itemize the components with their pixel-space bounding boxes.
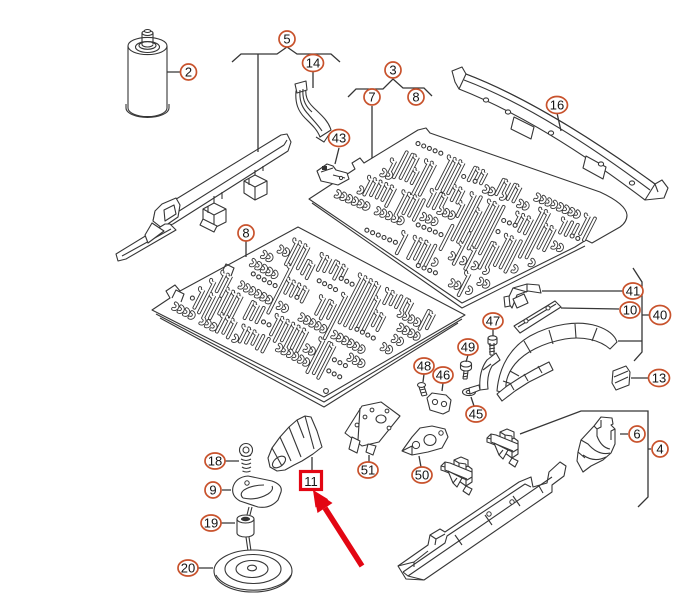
svg-text:20: 20 [181,561,195,576]
svg-text:2: 2 [185,65,192,80]
svg-text:7: 7 [368,90,375,105]
svg-text:11: 11 [304,474,318,489]
svg-text:41: 41 [626,284,640,299]
svg-text:14: 14 [306,56,320,71]
svg-text:45: 45 [469,407,483,422]
svg-text:48: 48 [417,359,431,374]
svg-text:3: 3 [389,63,396,78]
svg-text:40: 40 [653,308,667,323]
svg-text:19: 19 [204,516,218,531]
svg-text:49: 49 [461,340,475,355]
svg-text:46: 46 [436,368,450,383]
svg-text:9: 9 [209,483,216,498]
svg-text:8: 8 [242,226,249,241]
svg-text:10: 10 [623,303,637,318]
svg-text:8: 8 [412,90,419,105]
svg-text:47: 47 [486,314,500,329]
svg-text:16: 16 [550,98,564,113]
svg-text:50: 50 [415,468,429,483]
svg-text:4: 4 [656,442,663,457]
svg-text:51: 51 [361,463,375,478]
svg-text:13: 13 [652,371,666,386]
svg-text:5: 5 [283,32,290,47]
svg-text:6: 6 [633,427,640,442]
svg-text:43: 43 [332,131,346,146]
svg-text:18: 18 [208,454,222,469]
